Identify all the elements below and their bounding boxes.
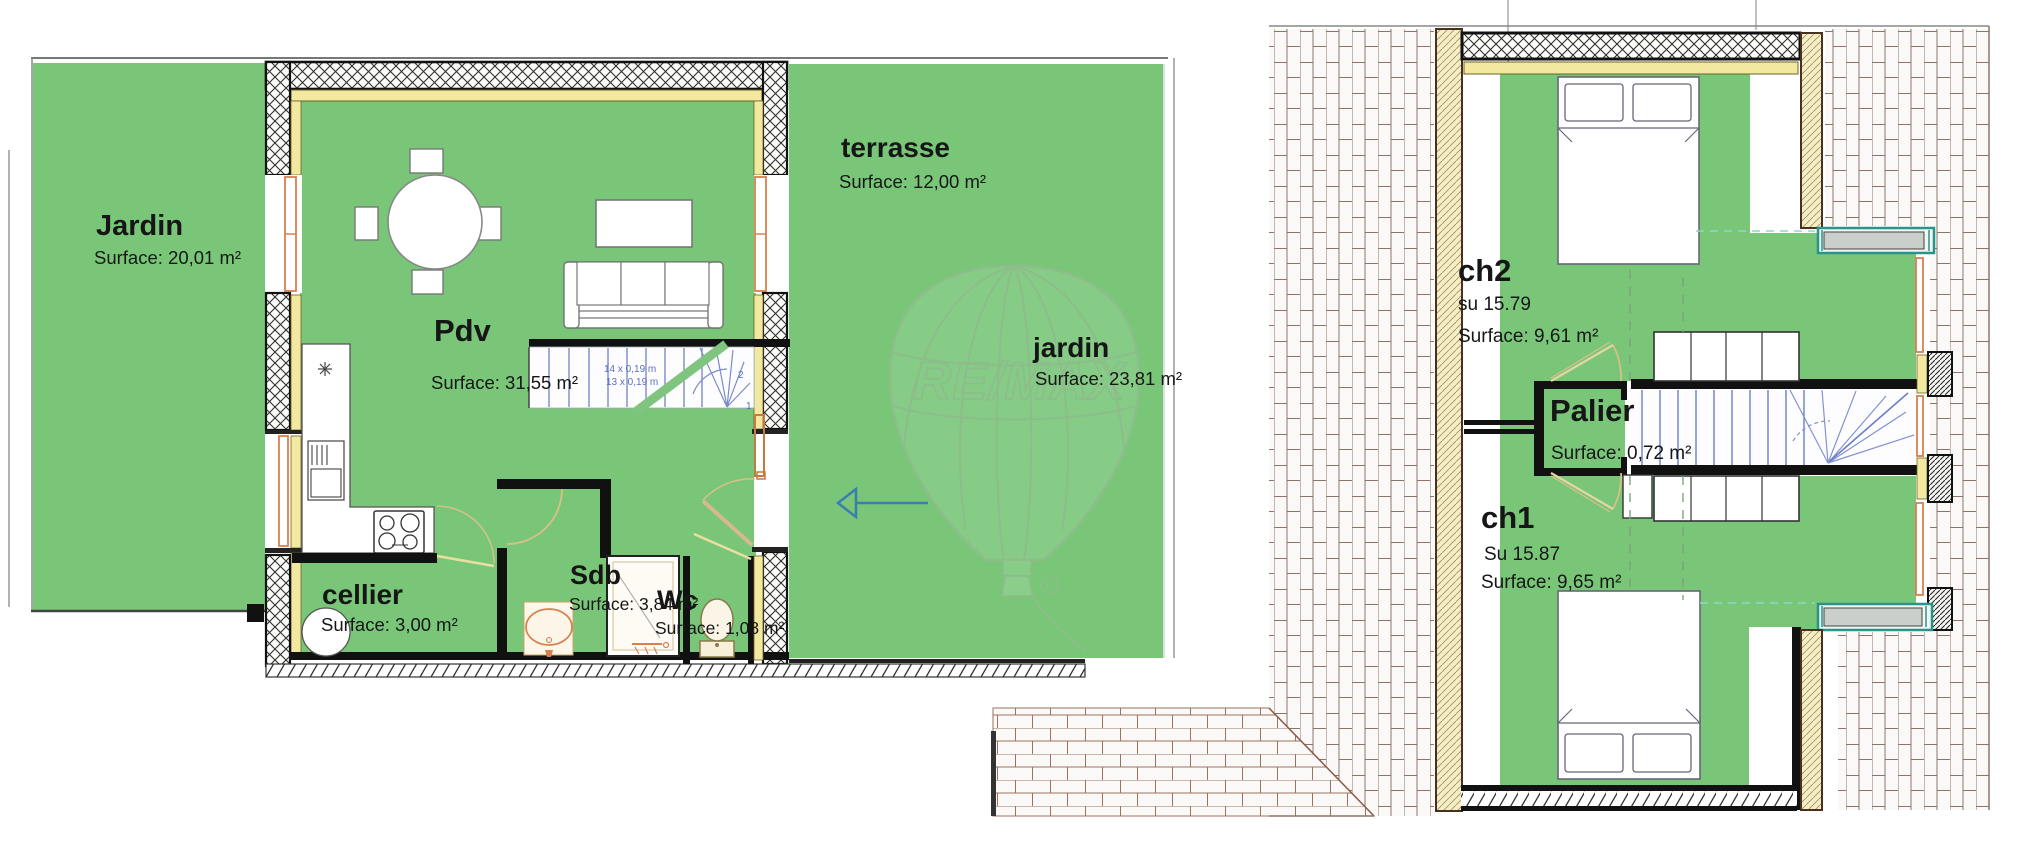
svg-text:R: R [1046,579,1055,593]
svg-text:Sdb: Sdb [570,560,621,590]
svg-text:14 x 0,19 m: 14 x 0,19 m [604,364,656,375]
svg-text:Surface: 0,72 m²: Surface: 0,72 m² [1551,443,1691,464]
svg-text:terrasse: terrasse [841,132,950,163]
svg-text:ch1: ch1 [1481,500,1534,535]
svg-text:Su 15.87: Su 15.87 [1484,544,1560,565]
svg-text:Surface: 31,55 m²: Surface: 31,55 m² [431,372,578,393]
svg-text:Surface: 9,65 m²: Surface: 9,65 m² [1481,572,1621,593]
svg-text:Surface: 1,08 m²: Surface: 1,08 m² [655,618,785,638]
svg-text:ch2: ch2 [1458,253,1511,288]
svg-text:su 15.79: su 15.79 [1458,294,1531,315]
svg-text:Pdv: Pdv [434,313,492,348]
svg-text:Surface: 12,00 m²: Surface: 12,00 m² [839,171,986,192]
svg-text:Palier: Palier [1550,393,1634,428]
svg-text:jardin: jardin [1032,332,1109,363]
svg-text:13 x 0,19 m: 13 x 0,19 m [606,377,658,388]
svg-text:Surface: 9,61 m²: Surface: 9,61 m² [1458,326,1598,347]
svg-text:Surface: 20,01 m²: Surface: 20,01 m² [94,247,241,268]
svg-text:Jardin: Jardin [96,210,183,242]
svg-text:2: 2 [738,370,744,381]
svg-text:cellier: cellier [322,579,403,610]
svg-text:Surface: 23,81 m²: Surface: 23,81 m² [1035,368,1182,389]
svg-text:Surface: 3,00 m²: Surface: 3,00 m² [321,614,458,635]
svg-text:1: 1 [746,401,752,412]
svg-text:Wc: Wc [657,585,698,615]
